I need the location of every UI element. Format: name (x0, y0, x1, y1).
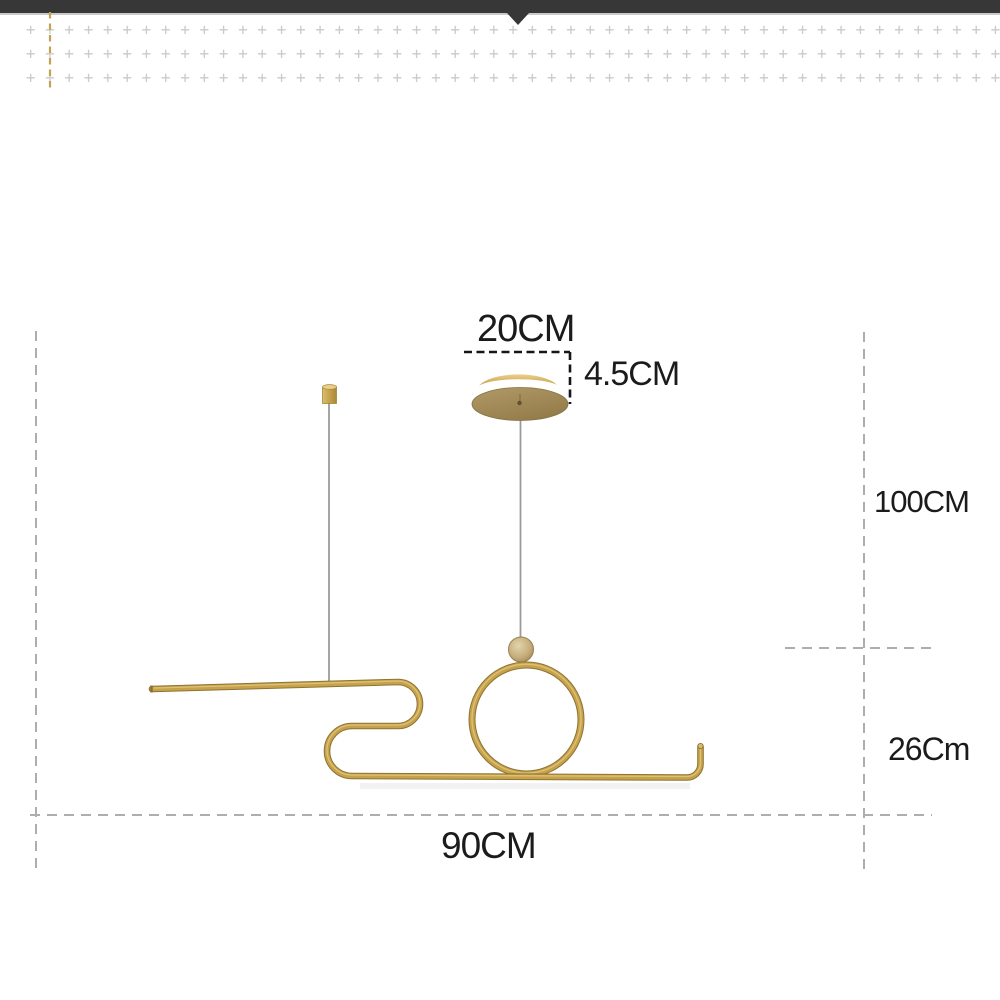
tube-end-cap-right (698, 743, 703, 748)
cylinder-top-face (323, 385, 337, 390)
product-dimension-diagram: ++++++++++++++++++++++++++++++++++++++++… (0, 0, 1000, 1000)
lamp-ring (472, 664, 581, 774)
lamp-body-tube (152, 681, 704, 778)
fixture-width-label: 90CM (441, 827, 536, 866)
drop-length-label: 100CM (874, 486, 969, 519)
canopy-height-label: 4.5CM (584, 357, 679, 393)
decorative-ball (509, 637, 534, 662)
fixture-height-label: 26Cm (888, 733, 969, 767)
canopy-crescent-highlight (479, 374, 557, 386)
canopy-wire-attachment (517, 401, 521, 405)
canopy-width-label: 20CM (477, 310, 574, 350)
